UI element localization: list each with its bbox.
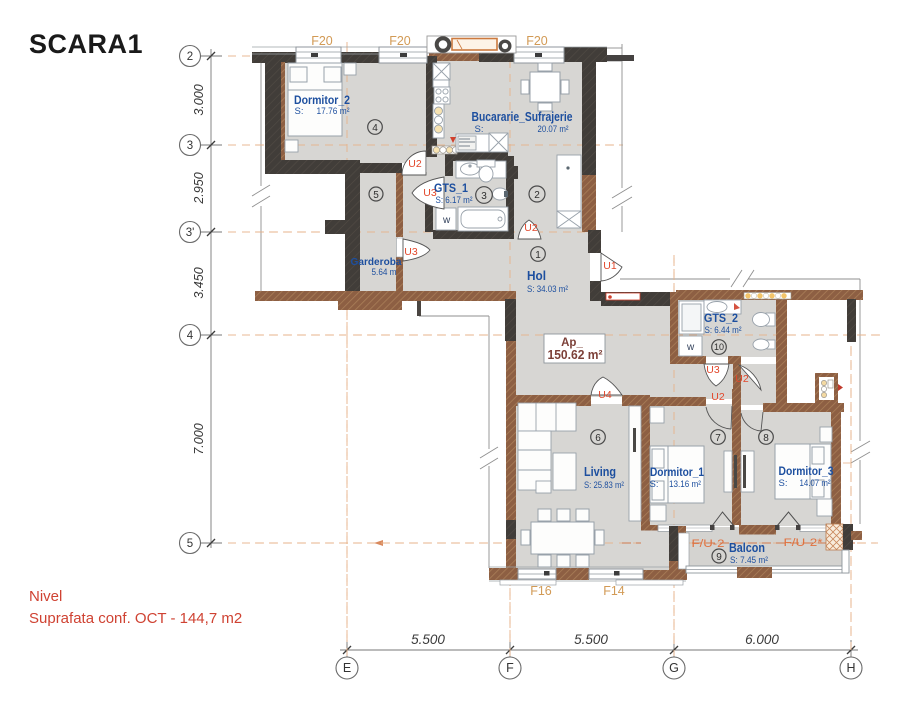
svg-text:GTS_1: GTS_1: [434, 181, 468, 195]
svg-text:F/U-2: F/U-2: [692, 538, 725, 550]
svg-text:S: 6.17 m²: S: 6.17 m²: [436, 195, 473, 206]
svg-text:Hol: Hol: [527, 268, 546, 283]
svg-text:1: 1: [535, 250, 541, 261]
svg-text:Suprafata conf. OCT - 144,7 m2: Suprafata conf. OCT - 144,7 m2: [29, 610, 242, 627]
svg-text:U2: U2: [524, 222, 538, 234]
svg-text:F16: F16: [530, 584, 552, 598]
svg-text:Living: Living: [584, 464, 616, 479]
svg-text:Nivel: Nivel: [29, 588, 62, 605]
svg-text:2: 2: [534, 190, 540, 201]
svg-text:7: 7: [715, 433, 721, 444]
svg-text:5: 5: [373, 190, 379, 201]
svg-text:U2: U2: [711, 391, 725, 403]
svg-text:3.450: 3.450: [192, 267, 206, 298]
svg-text:F20: F20: [389, 34, 411, 48]
svg-text:Balcon: Balcon: [729, 541, 765, 555]
svg-text:U4: U4: [598, 389, 612, 401]
svg-text:9: 9: [716, 552, 722, 563]
svg-text:U3: U3: [404, 246, 418, 258]
svg-text:U3: U3: [706, 364, 720, 376]
svg-text:w: w: [442, 215, 451, 226]
svg-text:6.000: 6.000: [745, 632, 779, 647]
svg-text:13.16 m²: 13.16 m²: [669, 479, 701, 490]
svg-text:S: 34.03 m²: S: 34.03 m²: [527, 284, 568, 295]
svg-text:5.500: 5.500: [411, 632, 445, 647]
svg-text:14.07 m²: 14.07 m²: [800, 478, 831, 489]
svg-text:3: 3: [187, 140, 193, 152]
svg-text:3: 3: [481, 191, 487, 202]
svg-text:20.07 m²: 20.07 m²: [538, 124, 569, 135]
svg-text:3': 3': [186, 227, 195, 239]
svg-text:Bucararie_Sufrajerie: Bucararie_Sufrajerie: [472, 109, 573, 124]
svg-text:2: 2: [187, 51, 193, 63]
svg-text:7.000: 7.000: [192, 423, 206, 454]
svg-text:U1: U1: [603, 260, 617, 272]
svg-text:S:: S:: [475, 124, 484, 135]
svg-text:F: F: [506, 661, 514, 675]
svg-text:U2: U2: [735, 373, 749, 385]
svg-text:H: H: [846, 661, 855, 675]
svg-text:5: 5: [187, 538, 193, 550]
svg-text:4: 4: [187, 330, 194, 342]
svg-text:U2: U2: [408, 158, 422, 170]
svg-text:S:: S:: [650, 479, 659, 490]
svg-text:F14: F14: [603, 584, 625, 598]
svg-text:6: 6: [595, 433, 601, 444]
svg-text:150.62 m²: 150.62 m²: [548, 347, 604, 362]
svg-text:S:: S:: [295, 106, 304, 117]
svg-text:S: 25.83 m²: S: 25.83 m²: [584, 480, 624, 491]
svg-text:w: w: [686, 342, 695, 353]
svg-text:17.76 m²: 17.76 m²: [317, 106, 350, 117]
svg-text:Dormitor_3: Dormitor_3: [779, 464, 834, 478]
svg-text:10: 10: [714, 342, 724, 352]
svg-text:F20: F20: [311, 34, 333, 48]
svg-text:3.000: 3.000: [192, 84, 206, 115]
svg-text:S: 6.44 m²: S: 6.44 m²: [705, 325, 742, 336]
svg-text:E: E: [343, 661, 351, 675]
svg-text:8: 8: [763, 433, 769, 444]
svg-text:GTS_2: GTS_2: [704, 311, 738, 325]
svg-text:5.64 m: 5.64 m: [372, 267, 397, 277]
svg-text:F20: F20: [526, 34, 548, 48]
svg-text:S: 7.45 m²: S: 7.45 m²: [730, 555, 768, 566]
svg-text:Dormitor_2: Dormitor_2: [294, 93, 350, 107]
svg-text:F/U-2*: F/U-2*: [784, 537, 824, 549]
svg-text:Dormitor_1: Dormitor_1: [650, 465, 704, 479]
svg-text:S:: S:: [779, 478, 788, 489]
svg-text:2.950: 2.950: [192, 172, 206, 204]
svg-text:4: 4: [372, 123, 378, 134]
svg-text:5.500: 5.500: [574, 632, 608, 647]
svg-text:G: G: [669, 661, 679, 675]
svg-text:SCARA1: SCARA1: [29, 29, 143, 59]
